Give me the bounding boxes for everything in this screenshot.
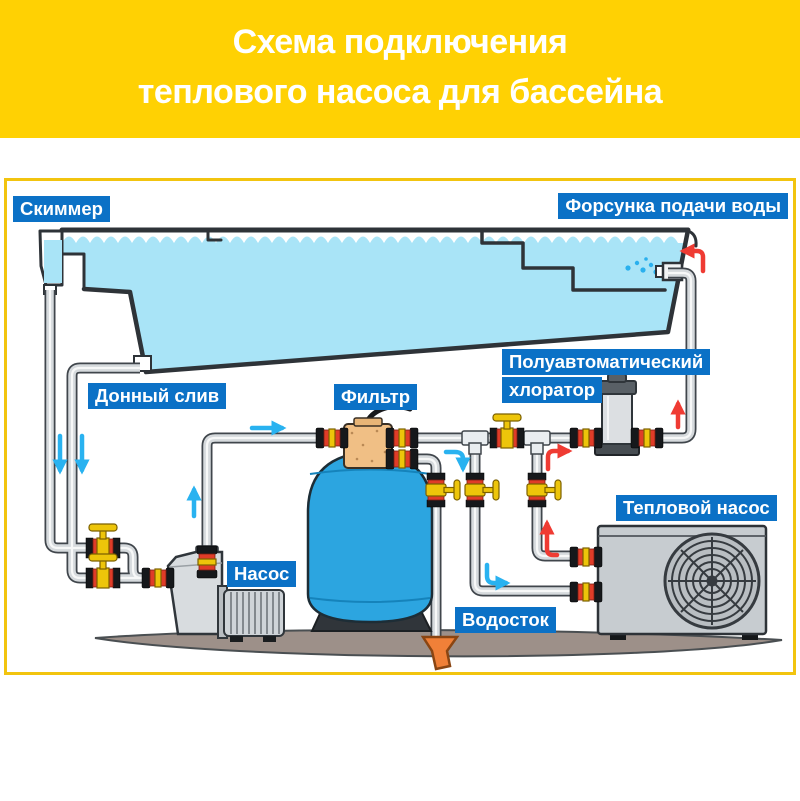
waste-valve [426, 473, 460, 507]
label-chlorinator-line1: Полуавтоматический [502, 349, 710, 375]
label-heat-pump: Тепловой насос [616, 495, 777, 521]
fan-icon [665, 534, 759, 628]
skimmer-valve [86, 524, 120, 558]
label-pump: Насос [227, 561, 296, 587]
heat-pump-outlet-valve [527, 473, 561, 507]
page: Схема подключения теплового насоса для б… [0, 0, 800, 801]
bypass-valve [490, 414, 524, 448]
label-water-inlet-nozzle: Форсунка подачи воды [558, 193, 788, 219]
label-bottom-drain: Донный слив [88, 383, 226, 409]
label-filter: Фильтр [334, 384, 417, 410]
label-drain: Водосток [455, 607, 556, 633]
bottom-drain-valve [86, 554, 120, 588]
pump-motor [218, 586, 284, 642]
label-chlorinator-line2: хлоратор [502, 377, 602, 403]
label-skimmer: Скиммер [13, 196, 110, 222]
heat-pump-inlet-valve [465, 473, 499, 507]
heat-pump-graphic [598, 526, 766, 640]
skimmer-graphic [40, 231, 62, 294]
